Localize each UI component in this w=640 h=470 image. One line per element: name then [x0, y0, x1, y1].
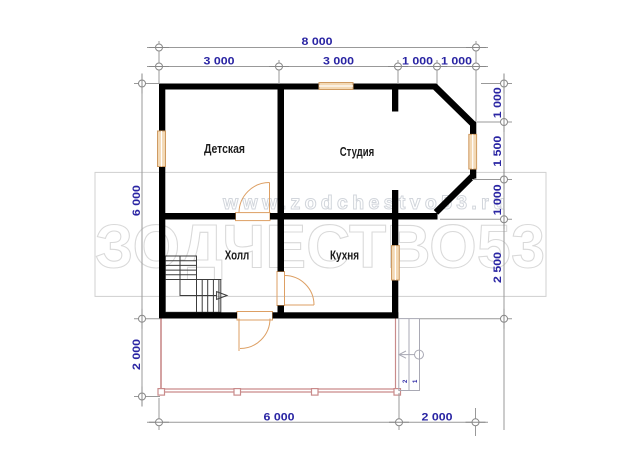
svg-text:1 000: 1 000	[492, 184, 504, 215]
svg-text:Детская: Детская	[204, 141, 245, 156]
svg-text:6 000: 6 000	[131, 185, 143, 216]
svg-text:3 000: 3 000	[204, 56, 235, 68]
svg-text:1 000: 1 000	[402, 56, 433, 68]
svg-text:2 000: 2 000	[422, 411, 453, 423]
svg-text:6 000: 6 000	[264, 411, 295, 423]
svg-text:2: 2	[403, 379, 409, 383]
svg-text:1 000: 1 000	[492, 87, 504, 118]
svg-text:1 500: 1 500	[492, 136, 504, 167]
svg-text:Студия: Студия	[340, 144, 375, 159]
svg-text:1: 1	[413, 379, 419, 383]
svg-text:2 500: 2 500	[492, 252, 504, 283]
svg-text:www.zodchestvo53.ru: www.zodchestvo53.ru	[222, 192, 505, 214]
svg-text:1 000: 1 000	[441, 56, 472, 68]
svg-text:Холл: Холл	[225, 247, 250, 262]
svg-text:3 000: 3 000	[323, 56, 354, 68]
svg-text:Кухня: Кухня	[330, 247, 359, 262]
svg-text:8 000: 8 000	[302, 36, 333, 48]
svg-text:2 000: 2 000	[131, 339, 143, 370]
